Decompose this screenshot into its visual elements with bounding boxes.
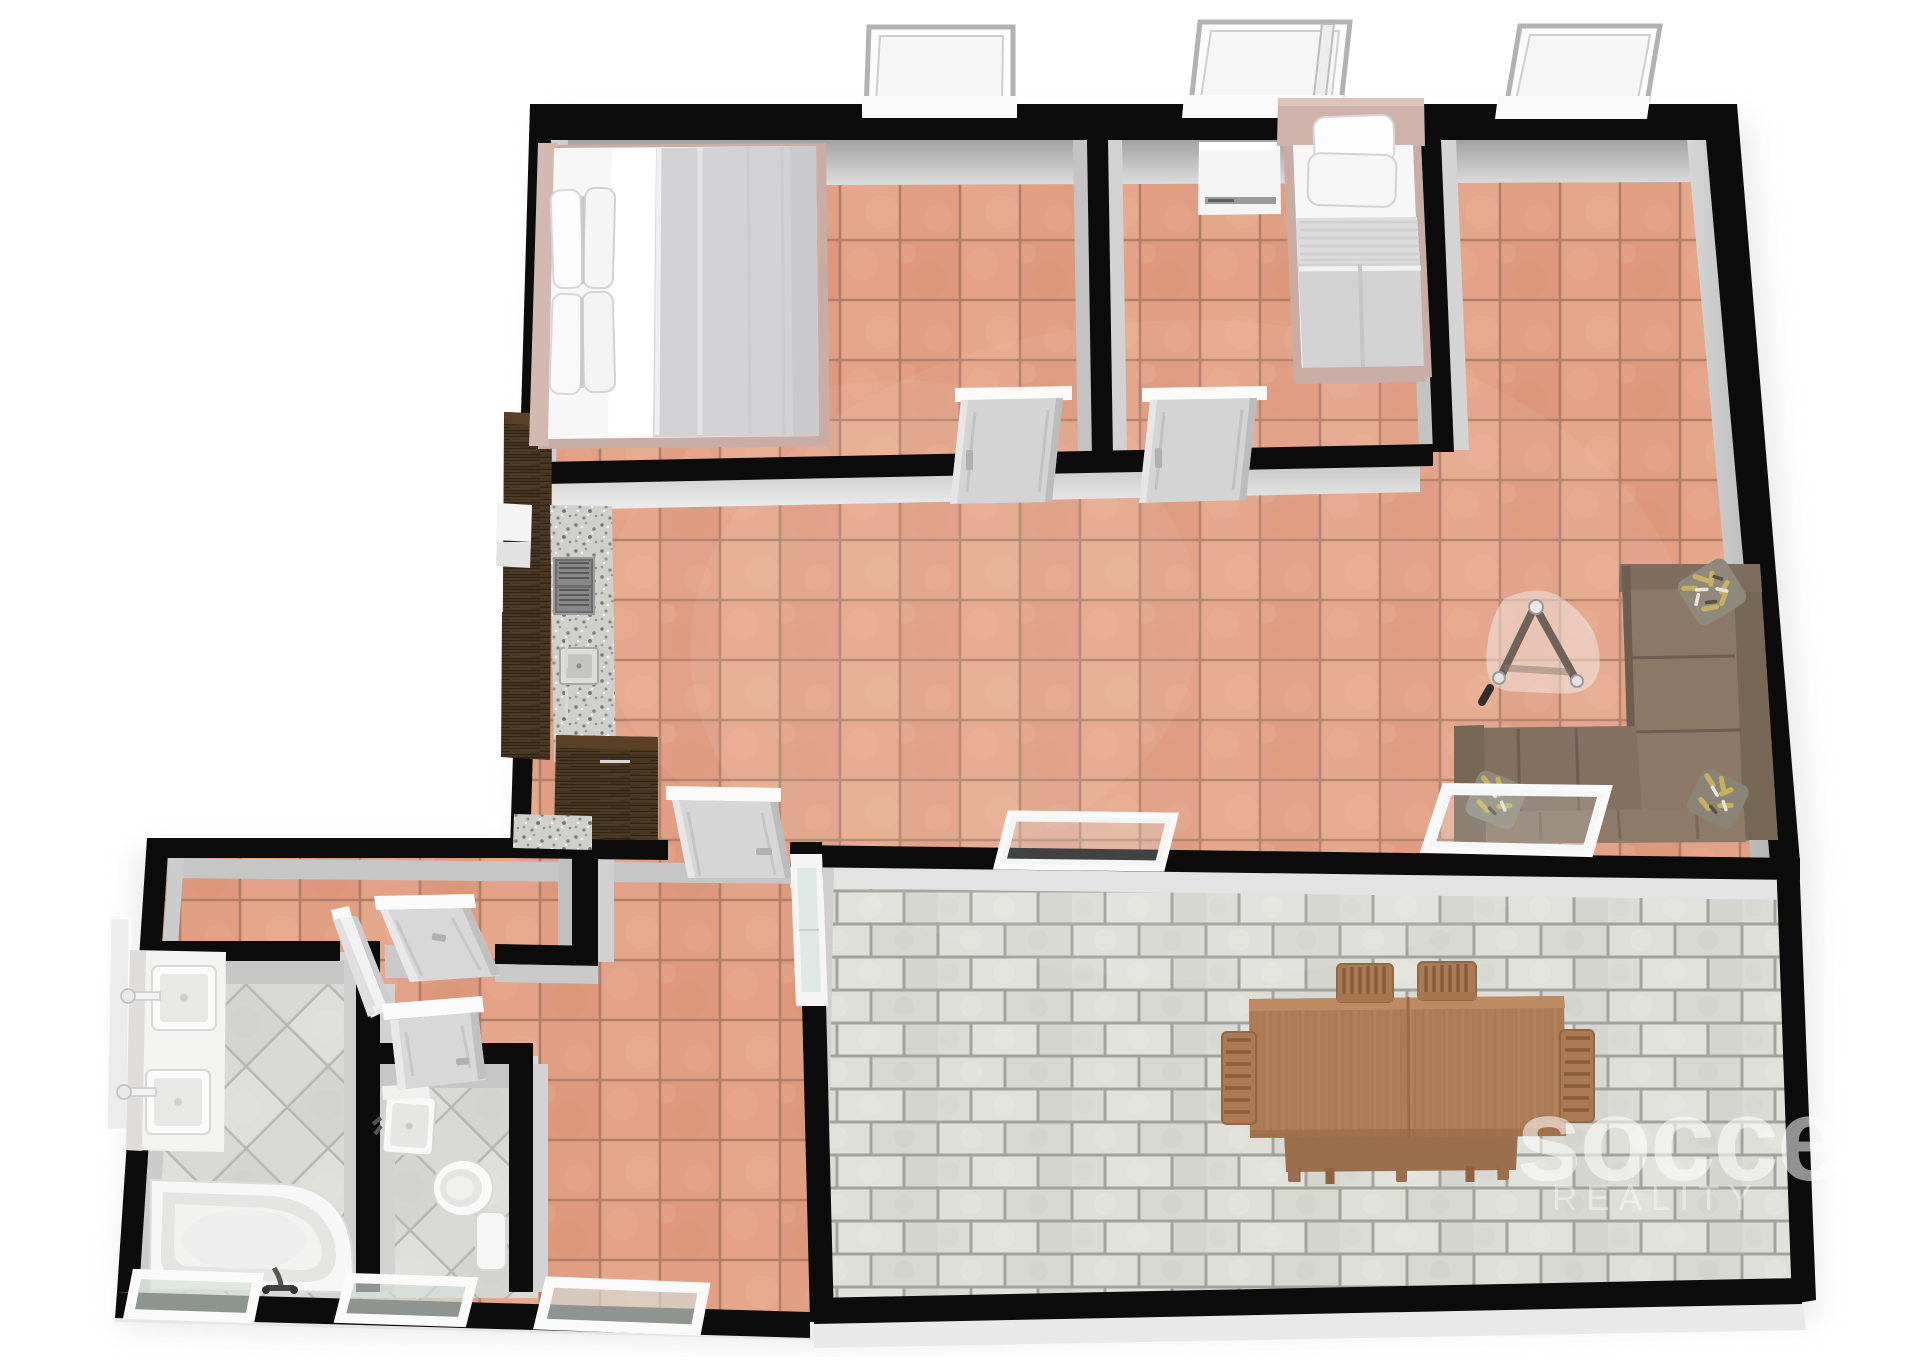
svg-text:REALITY: REALITY <box>1552 1179 1761 1218</box>
